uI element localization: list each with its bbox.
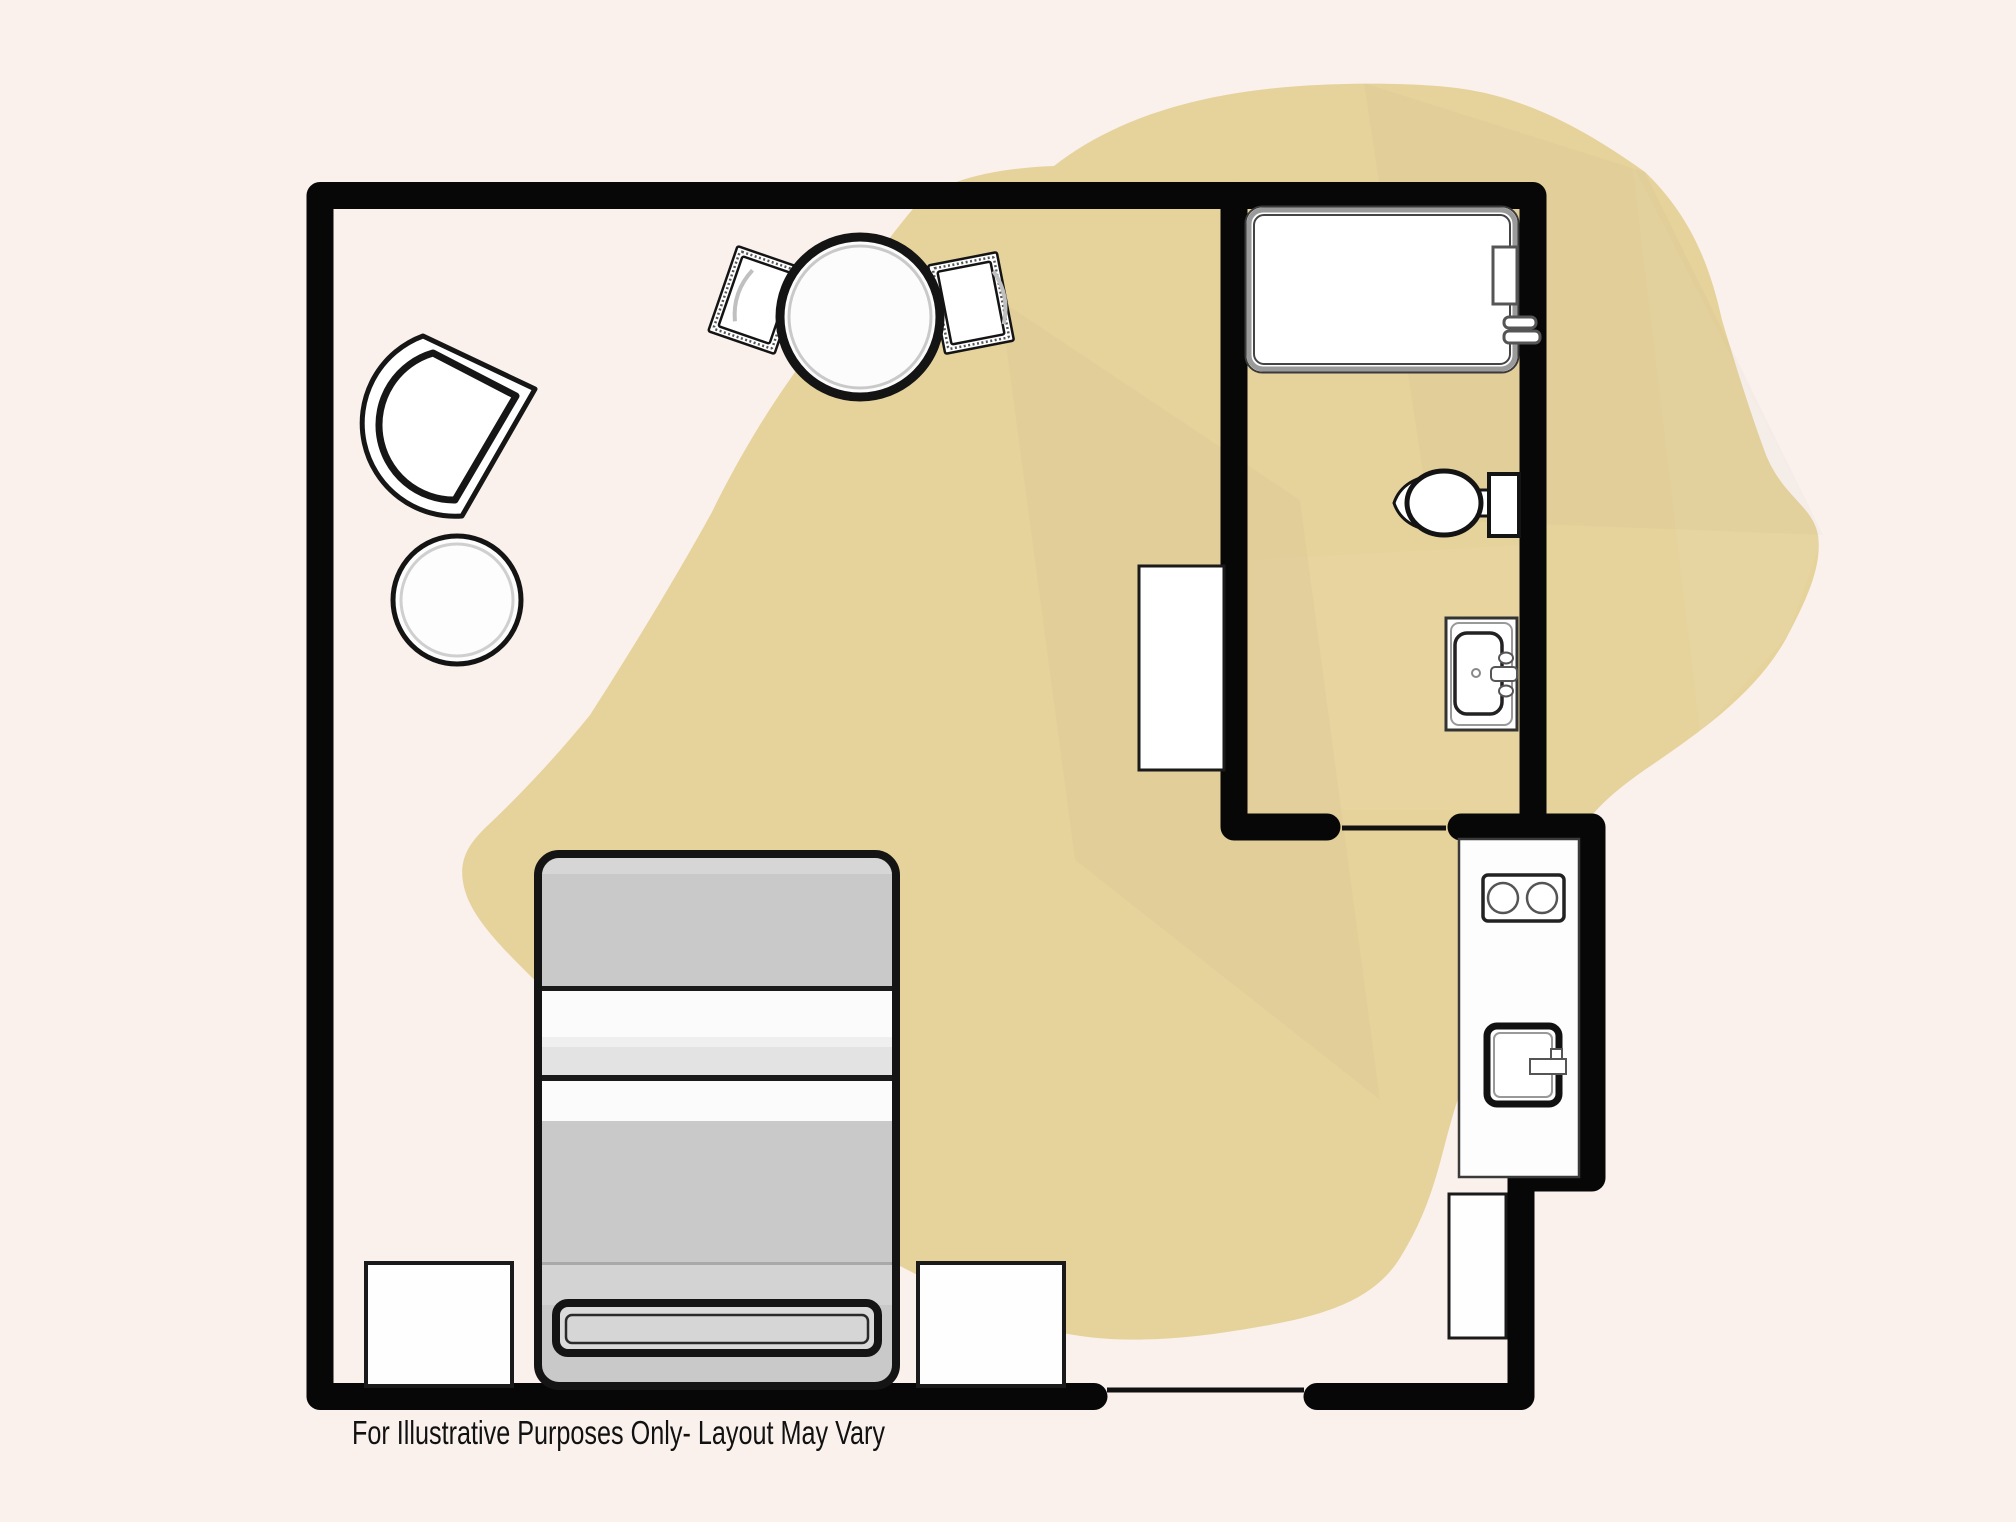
svg-text:For Illustrative Purposes Only: For Illustrative Purposes Only- Layout M… (352, 1414, 885, 1451)
